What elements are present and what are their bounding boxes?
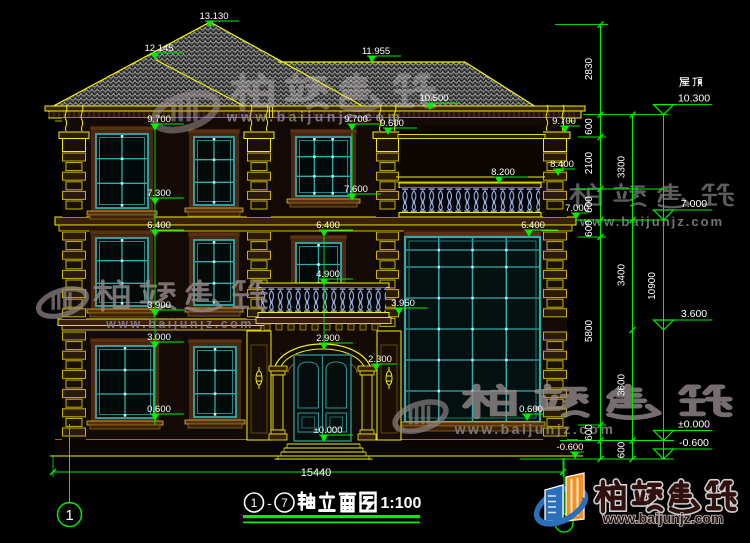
- svg-text:12.145: 12.145: [144, 43, 173, 54]
- svg-text:7: 7: [281, 496, 288, 510]
- svg-text:www.baijunjz.com: www.baijunjz.com: [226, 109, 404, 125]
- svg-text:3.600: 3.600: [681, 308, 707, 320]
- svg-text:3600: 3600: [617, 373, 628, 396]
- svg-text:9.600: 9.600: [380, 118, 404, 129]
- svg-text:-0.600: -0.600: [557, 442, 584, 453]
- svg-text:3.950: 3.950: [391, 298, 415, 309]
- svg-text:7.600: 7.600: [344, 184, 368, 195]
- svg-text:±0.000: ±0.000: [314, 425, 343, 436]
- svg-text:2100: 2100: [584, 151, 595, 174]
- svg-text:-0.600: -0.600: [679, 437, 709, 449]
- svg-text:8.400: 8.400: [550, 159, 574, 170]
- svg-text:3.000: 3.000: [147, 332, 171, 343]
- svg-text:8.200: 8.200: [491, 167, 515, 178]
- svg-text:1: 1: [251, 496, 258, 510]
- svg-text:1: 1: [65, 507, 73, 524]
- svg-text:1:100: 1:100: [381, 495, 422, 512]
- svg-text:4.900: 4.900: [316, 269, 340, 280]
- svg-text:2.900: 2.900: [316, 333, 340, 344]
- svg-text:600: 600: [617, 441, 628, 458]
- svg-text:13.130: 13.130: [199, 11, 228, 22]
- svg-text:600: 600: [584, 196, 595, 213]
- svg-text:7.300: 7.300: [147, 188, 171, 199]
- svg-text:www.baijunjz.com: www.baijunjz.com: [105, 317, 254, 331]
- svg-text:10900: 10900: [647, 272, 658, 300]
- svg-text:6.400: 6.400: [316, 220, 340, 231]
- svg-text:-: -: [267, 495, 272, 511]
- svg-text:10.500: 10.500: [419, 93, 448, 104]
- svg-text:6.400: 6.400: [147, 220, 171, 231]
- svg-text:600: 600: [584, 424, 595, 441]
- svg-text:2.300: 2.300: [368, 354, 392, 365]
- svg-text:9.700: 9.700: [552, 116, 576, 127]
- svg-text:2830: 2830: [584, 57, 595, 80]
- svg-text:600: 600: [584, 220, 595, 237]
- svg-text:5800: 5800: [584, 319, 595, 342]
- svg-text:www.baijunjz.com: www.baijunjz.com: [602, 510, 724, 526]
- svg-text:3400: 3400: [617, 263, 628, 286]
- svg-text:10.300: 10.300: [678, 93, 710, 105]
- svg-text:±0.000: ±0.000: [678, 419, 710, 431]
- svg-text:7.000: 7.000: [681, 198, 707, 210]
- svg-text:9.700: 9.700: [344, 114, 368, 125]
- svg-text:600: 600: [584, 118, 595, 135]
- svg-text:15440: 15440: [301, 467, 332, 479]
- svg-text:9.700: 9.700: [147, 114, 171, 125]
- svg-text:3300: 3300: [617, 155, 628, 178]
- svg-text:11.955: 11.955: [362, 46, 390, 57]
- svg-text:0.600: 0.600: [147, 404, 171, 415]
- svg-text:6.400: 6.400: [521, 220, 545, 231]
- svg-text:3.900: 3.900: [147, 300, 171, 311]
- svg-text:0.600: 0.600: [519, 404, 543, 415]
